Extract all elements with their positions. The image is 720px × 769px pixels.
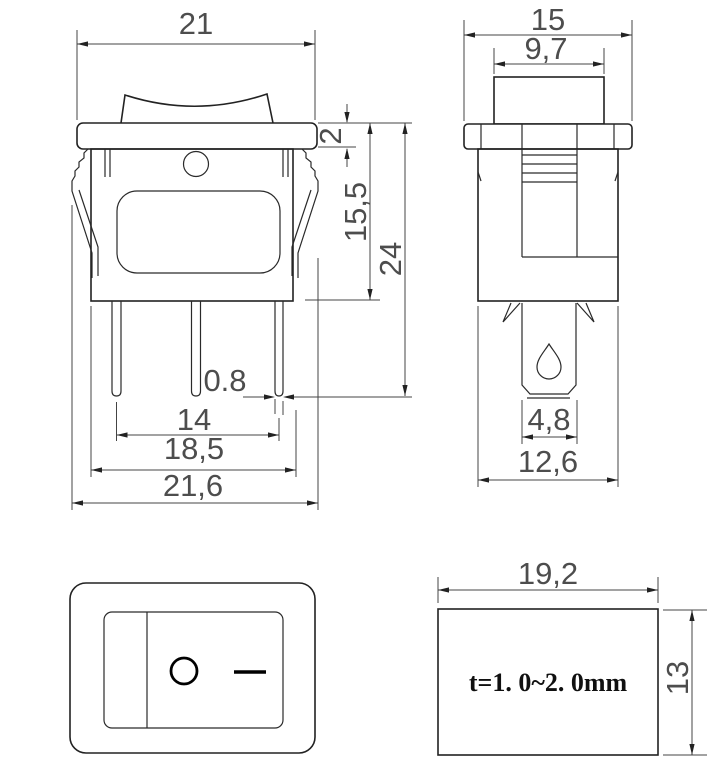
side-view: 15 9,7 4,8 12,6: [464, 2, 632, 487]
dim-body-height: 15,5: [305, 123, 380, 300]
dim-terminal-width: 4,8: [522, 400, 577, 444]
dim-text-19-2: 19,2: [518, 556, 578, 591]
dim-text-12-6: 12,6: [518, 444, 578, 479]
flange-outline: [77, 123, 317, 149]
panel-cutout-view: t=1. 0~2. 0mm 19,2 13: [438, 556, 707, 755]
rocker-switch-drawing: 21 2 15,5 24 0.8 14: [0, 0, 720, 769]
dim-cutout-height: 13: [660, 610, 707, 755]
dim-flange-thickness: 2: [313, 104, 356, 167]
rocker-cap-outline: [121, 94, 273, 123]
dim-terminal-thickness: 0.8: [203, 363, 412, 415]
dim-text-0-8: 0.8: [203, 363, 246, 398]
face-view: [70, 583, 315, 753]
dim-cutout-width: 19,2: [438, 556, 658, 603]
snap-wing-right-inner: [292, 190, 311, 276]
dim-text-9-7: 9,7: [524, 31, 567, 66]
dim-body-depth: 12,6: [478, 306, 618, 487]
terminal-pin-left: [112, 301, 121, 396]
rocker-cap-side: [494, 77, 604, 124]
dim-text-4-8: 4,8: [527, 402, 570, 437]
teardrop-hole: [537, 344, 561, 379]
terminal-pin-right: [275, 301, 283, 396]
dim-body-width: 18,5: [91, 306, 296, 477]
dim-front-width-top: 21: [77, 6, 315, 120]
dim-text-21-6: 21,6: [163, 468, 223, 503]
mounting-rib-left: [105, 149, 110, 177]
locking-barb-right: [577, 303, 594, 322]
dim-text-2: 2: [313, 127, 348, 144]
dim-text-13: 13: [660, 661, 695, 695]
switch-body-side: [478, 149, 618, 301]
dim-text-21: 21: [179, 6, 213, 41]
switch-body-outline: [91, 149, 293, 301]
dim-text-15-5: 15,5: [338, 182, 373, 242]
window-opening: [117, 191, 280, 273]
terminal-side: [522, 303, 576, 394]
pivot-hole: [184, 152, 209, 177]
terminal-pin-center: [192, 301, 201, 396]
mounting-rib-right: [283, 149, 288, 177]
locking-barb-left: [503, 303, 520, 322]
center-column: [522, 149, 618, 257]
snap-wing-left: [72, 149, 92, 278]
front-view: 21 2 15,5 24 0.8 14: [72, 6, 412, 510]
dim-text-18-5: 18,5: [164, 431, 224, 466]
snap-wing-right: [298, 149, 318, 278]
rocker-face: [104, 612, 283, 728]
dim-rocker-depth: 9,7: [494, 31, 604, 74]
dim-total-height: 24: [318, 123, 412, 396]
flange-side: [464, 124, 632, 149]
dim-text-24: 24: [373, 242, 408, 276]
technical-drawing-page: 21 2 15,5 24 0.8 14: [0, 0, 720, 769]
power-off-symbol: [171, 658, 197, 684]
latch-ribs: [522, 155, 577, 182]
snap-wing-left-inner: [79, 190, 98, 276]
panel-thickness-note: t=1. 0~2. 0mm: [469, 668, 628, 697]
